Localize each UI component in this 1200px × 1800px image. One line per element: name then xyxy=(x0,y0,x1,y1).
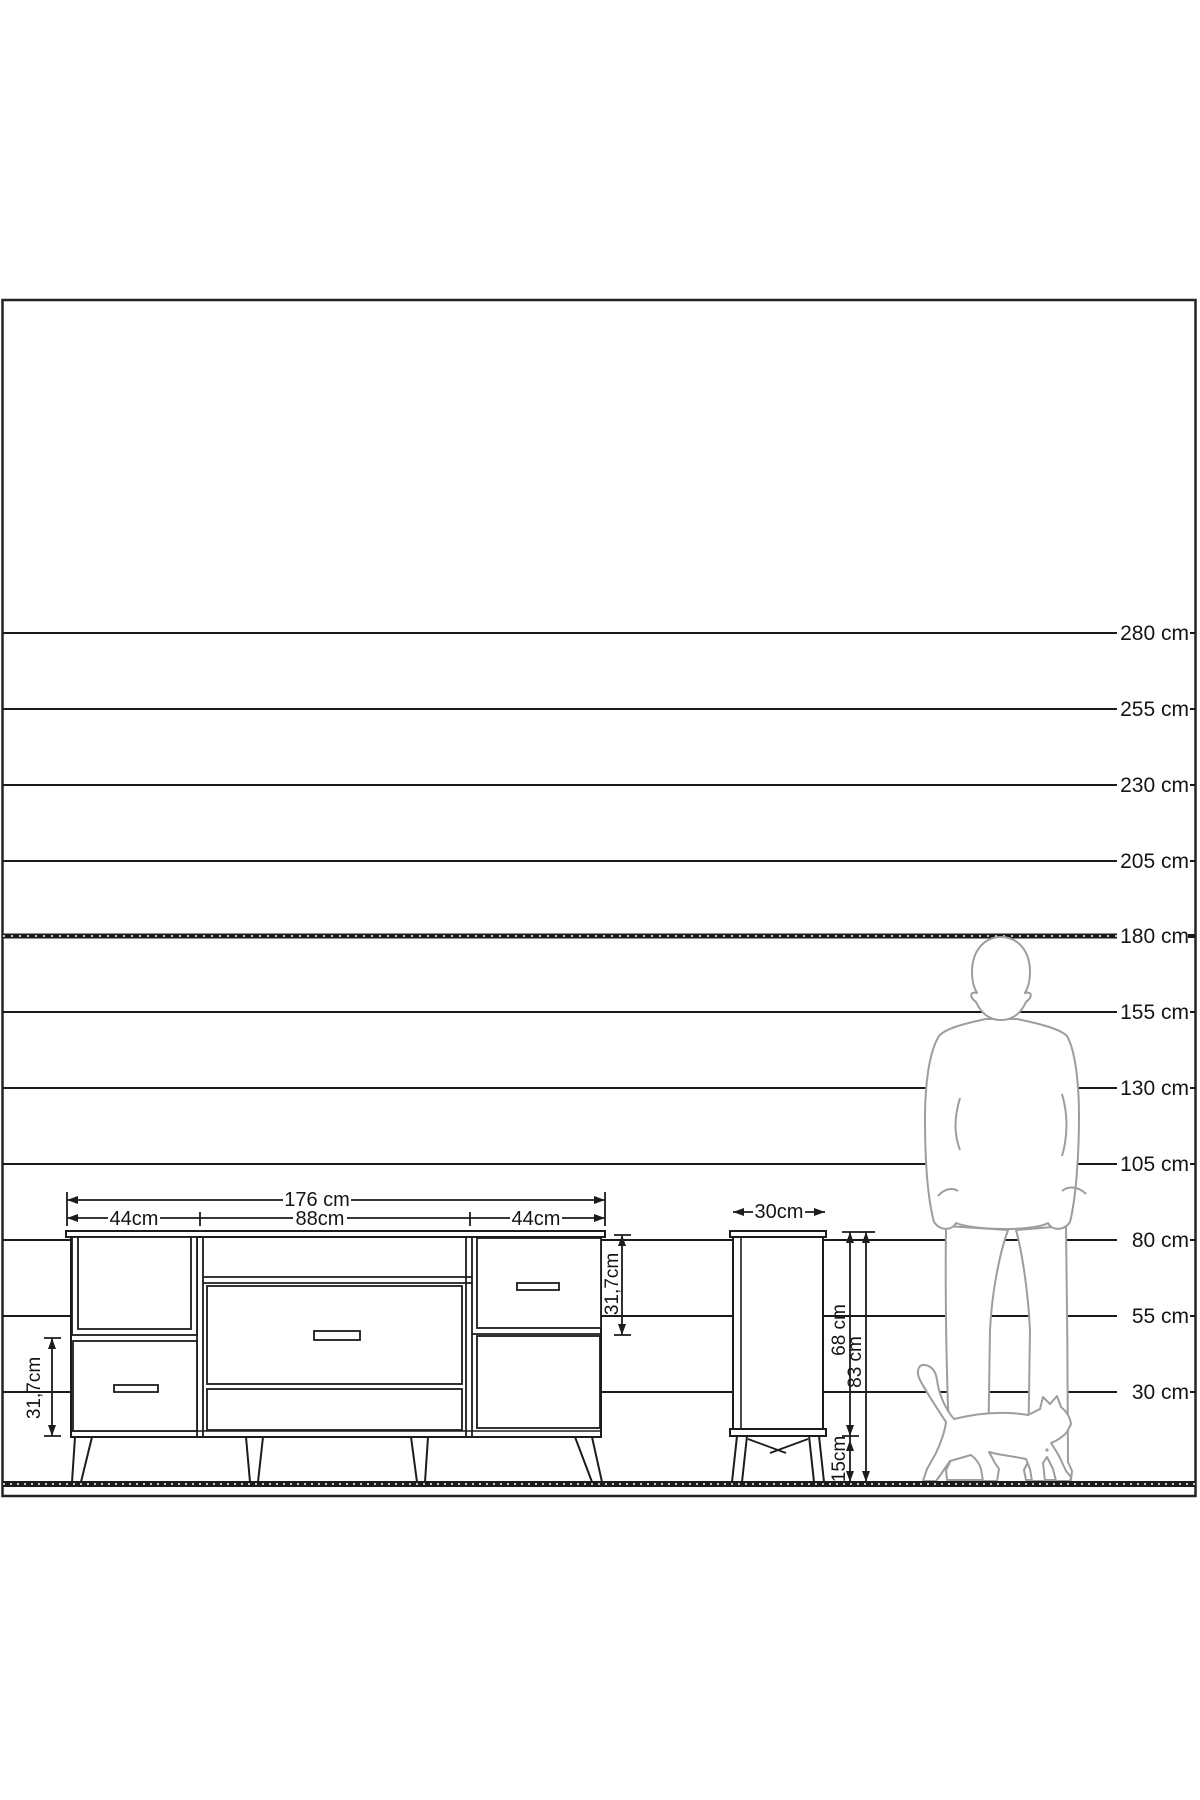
man-head xyxy=(971,937,1031,1020)
sideboard-top xyxy=(66,1231,605,1237)
dim-label-right-width: 44cm xyxy=(512,1208,561,1230)
sideboard-drawer-middle-handle xyxy=(314,1331,360,1340)
scale-drawing: 280 cm 255 cm 230 cm 205 cm 180 cm 155 c… xyxy=(0,0,1200,1800)
dim-label-right-drawer-height: 31,7cm xyxy=(602,1253,623,1315)
sideboard-drawer-middle-bottom xyxy=(207,1389,462,1430)
ruler-label-80: 80 cm xyxy=(1132,1229,1189,1252)
sideboard-drawer-right-handle xyxy=(517,1283,559,1290)
dim-label-middle-width: 88cm xyxy=(296,1208,345,1230)
cabinet-body xyxy=(733,1237,823,1430)
ruler-label-205: 205 cm xyxy=(1120,850,1189,873)
dim-label-cabinet-depth: 30cm xyxy=(755,1201,804,1223)
man-torso xyxy=(925,1019,1079,1229)
cabinet-top xyxy=(730,1231,826,1237)
dim-label-left-width: 44cm xyxy=(110,1208,159,1230)
ruler-label-30: 30 cm xyxy=(1132,1381,1189,1404)
cabinet-bottom-board xyxy=(730,1429,826,1436)
dim-label-cabinet-leg-height: 15cm xyxy=(829,1436,850,1482)
ruler-label-255: 255 cm xyxy=(1120,698,1189,721)
cat-fur-dot xyxy=(1045,1448,1048,1451)
ruler-label-155: 155 cm xyxy=(1120,1001,1189,1024)
ruler-label-280: 280 cm xyxy=(1120,622,1189,645)
ruler-label-230: 230 cm xyxy=(1120,774,1189,797)
sideboard-door-right xyxy=(477,1336,600,1428)
ruler-label-130: 130 cm xyxy=(1120,1077,1189,1100)
sideboard-drawer-left-handle xyxy=(114,1385,158,1392)
ruler-label-55: 55 cm xyxy=(1132,1305,1189,1328)
scale-drawing-page: 280 cm 255 cm 230 cm 205 cm 180 cm 155 c… xyxy=(0,0,1200,1800)
sideboard-open-cubby-inner xyxy=(78,1237,191,1329)
ruler-label-180: 180 cm xyxy=(1120,925,1189,948)
dim-label-left-drawer-height: 31,7cm xyxy=(24,1357,45,1419)
ruler-label-105: 105 cm xyxy=(1120,1153,1189,1176)
dim-label-cabinet-total-height: 83 cm xyxy=(845,1336,866,1388)
